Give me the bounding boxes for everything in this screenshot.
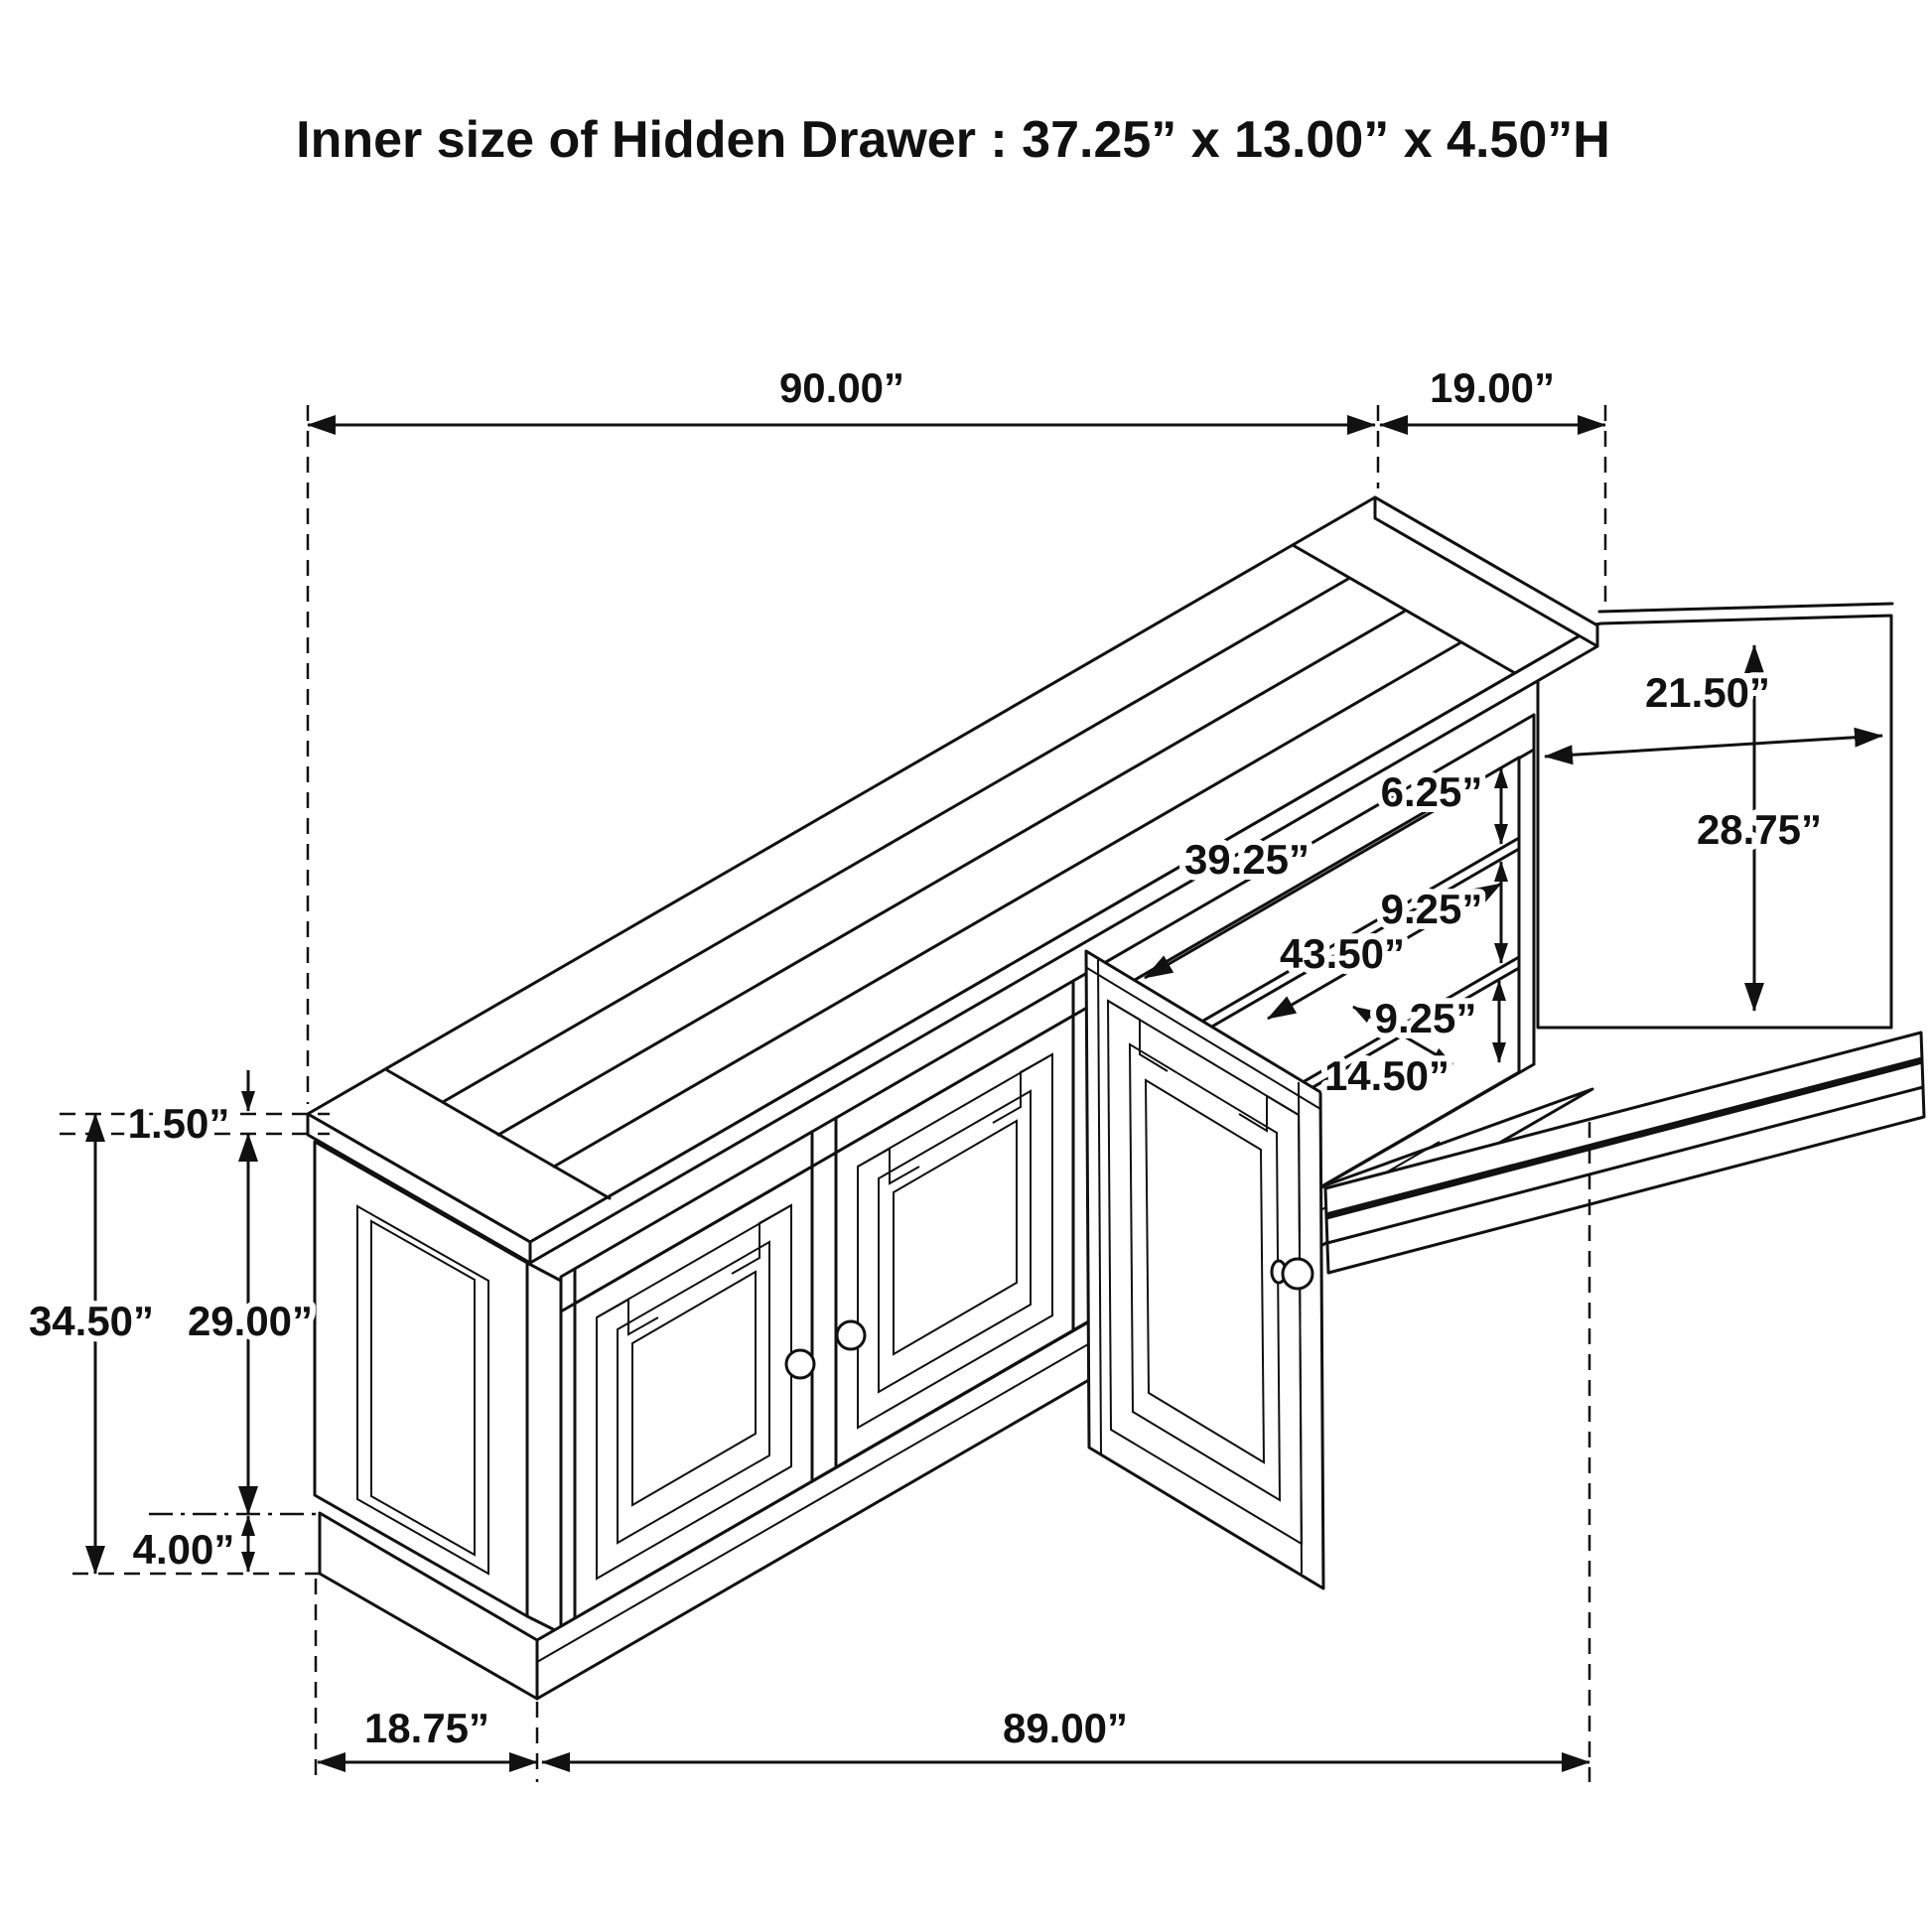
label-opening-width: 39.25” (1184, 836, 1310, 883)
label-open-door-height: 28.75” (1697, 806, 1822, 853)
dimension-labels: 90.00” 19.00” 18.75” 89.00” 34.50” 29.00… (29, 364, 1822, 1751)
label-top-thickness: 1.50” (128, 1100, 230, 1147)
door-3-knob-icon (1283, 1259, 1312, 1289)
label-side-depth: 18.75” (364, 1705, 489, 1751)
sideboard-dimension-diagram: Inner size of Hidden Drawer : 37.25” x 1… (0, 0, 1932, 1932)
open-door-right-top-edge (1599, 604, 1892, 612)
door-1-knob-icon (786, 1350, 814, 1378)
label-overall-height: 34.50” (29, 1298, 154, 1344)
label-shelf-gap-upper: 9.25” (1381, 886, 1483, 932)
front-left-corner-stile (527, 1263, 561, 1633)
dimension-drawing-page: Inner size of Hidden Drawer : 37.25” x 1… (0, 0, 1932, 1932)
label-shelf-depth: 14.50” (1324, 1052, 1449, 1099)
label-body-width: 89.00” (1003, 1705, 1128, 1751)
label-base-height: 4.00” (133, 1526, 235, 1573)
label-top-width: 90.00” (779, 364, 904, 411)
label-open-door-width: 21.50” (1645, 669, 1770, 716)
door-2-knob-icon (837, 1321, 865, 1349)
label-shelf-gap-top: 6.25” (1381, 768, 1483, 815)
label-shelf-gap-lower: 9.25” (1375, 995, 1477, 1041)
drawing-title: Inner size of Hidden Drawer : 37.25” x 1… (296, 111, 1610, 169)
label-top-depth: 19.00” (1430, 364, 1555, 411)
label-door-opening-height: 29.00” (188, 1298, 313, 1344)
label-interior-width: 43.50” (1280, 930, 1405, 977)
